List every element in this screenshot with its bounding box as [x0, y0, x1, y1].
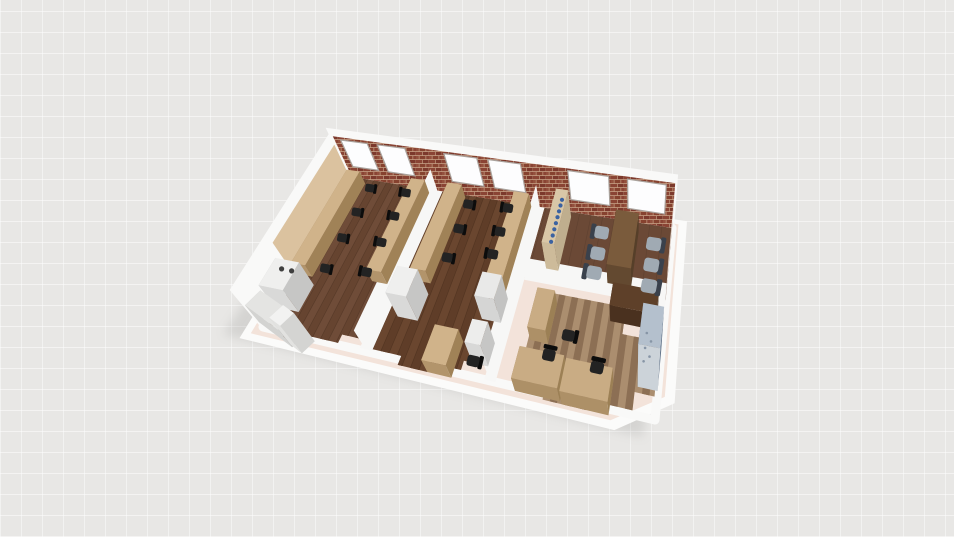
window-6[interactable] — [628, 179, 667, 214]
design-canvas[interactable] — [0, 0, 954, 537]
floorplan-3d-view[interactable] — [0, 0, 954, 537]
scene-root — [223, 128, 687, 437]
window-5[interactable] — [568, 171, 610, 206]
